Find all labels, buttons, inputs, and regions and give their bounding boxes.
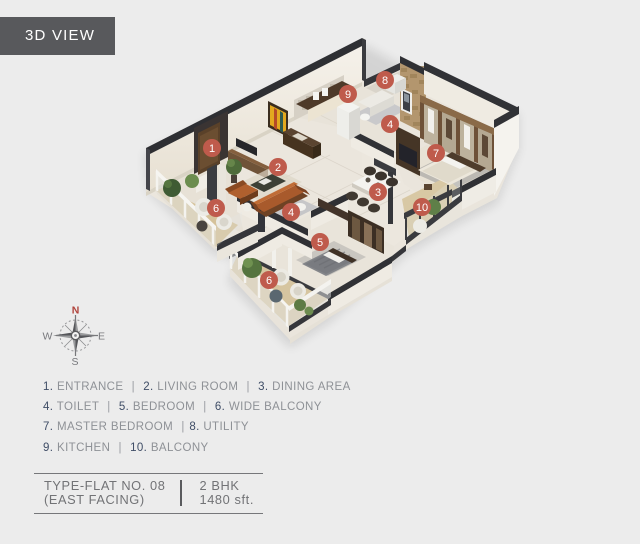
svg-text:3: 3 [375, 187, 381, 199]
svg-text:10: 10 [416, 202, 428, 214]
svg-text:4: 4 [387, 119, 393, 131]
svg-text:4: 4 [288, 207, 294, 219]
svg-text:9: 9 [345, 89, 351, 101]
svg-text:6: 6 [266, 275, 272, 287]
svg-text:6: 6 [213, 203, 219, 215]
svg-text:E: E [98, 331, 105, 343]
svg-text:N: N [72, 305, 80, 317]
svg-text:5: 5 [317, 237, 323, 249]
svg-text:S: S [71, 356, 78, 368]
svg-text:7: 7 [433, 148, 439, 160]
svg-text:W: W [43, 331, 53, 343]
svg-text:2: 2 [275, 162, 281, 174]
svg-text:1: 1 [209, 143, 215, 155]
svg-text:8: 8 [382, 75, 388, 87]
